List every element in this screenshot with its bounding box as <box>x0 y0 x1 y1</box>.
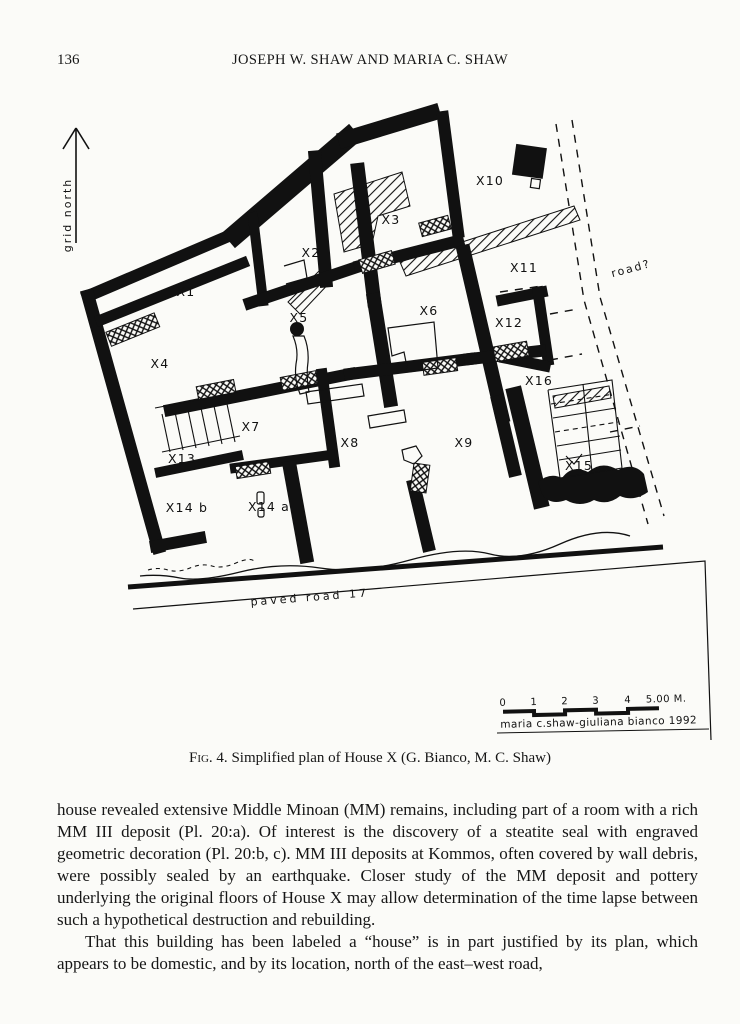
room-label-x11: X11 <box>510 260 538 275</box>
road-right-label: road? <box>610 257 653 280</box>
room-label-x2: X2 <box>302 245 321 260</box>
pillar-x10 <box>512 144 547 179</box>
room-label-x15: X15 <box>565 458 593 473</box>
room-label-x13: X13 <box>168 451 196 466</box>
room-label-x14a: X14 a <box>248 499 290 514</box>
room-label-x14b: X14 b <box>166 500 208 515</box>
scale-bar: 0 1 2 3 4 5.00 M. maria c.shaw-giuliana … <box>499 693 697 730</box>
running-header: JOSEPH W. SHAW AND MARIA C. SHAW <box>0 52 740 69</box>
scale-tick-0: 0 <box>499 698 506 709</box>
scale-tick-4: 4 <box>624 695 631 706</box>
house-x-plan-drawing: grid north road? <box>0 85 740 740</box>
room-label-x10: X10 <box>476 173 504 188</box>
room-label-x1: X1 <box>177 284 196 299</box>
figure-caption-label: Fig. 4. <box>189 750 228 766</box>
scale-tick-2: 2 <box>561 696 568 707</box>
road-bottom-label: paved road 17 <box>250 586 369 608</box>
scale-end-label: 5.00 M. <box>646 694 687 706</box>
room-label-x6: X6 <box>420 303 439 318</box>
figure-plan-house-x: grid north road? <box>0 85 740 740</box>
room-label-x9: X9 <box>455 435 474 450</box>
paved-road-lines <box>128 547 663 587</box>
paragraph-2: That this building has been labeled a “h… <box>57 931 698 975</box>
room-label-x7: X7 <box>242 419 261 434</box>
scale-tick-1: 1 <box>530 697 537 708</box>
paragraph-1: house revealed extensive Middle Minoan (… <box>57 799 698 931</box>
room-label-x12: X12 <box>495 315 523 330</box>
north-label: grid north <box>61 178 74 253</box>
scanned-paper-page: { "page": { "number": "136", "running_he… <box>0 0 740 1024</box>
figure-caption: Fig. 4. Simplified plan of House X (G. B… <box>0 750 740 767</box>
room-label-x5: X5 <box>290 310 309 325</box>
figure-caption-text: Simplified plan of House X (G. Bianco, M… <box>228 750 551 766</box>
room-label-x4: X4 <box>151 356 170 371</box>
scale-tick-3: 3 <box>592 696 599 707</box>
body-text: house revealed extensive Middle Minoan (… <box>57 799 698 975</box>
scale-credit: maria c.shaw-giuliana bianco 1992 <box>500 714 697 730</box>
room-label-x16: X16 <box>525 373 553 388</box>
room-label-x8: X8 <box>341 435 360 450</box>
room-label-x3: X3 <box>382 212 401 227</box>
